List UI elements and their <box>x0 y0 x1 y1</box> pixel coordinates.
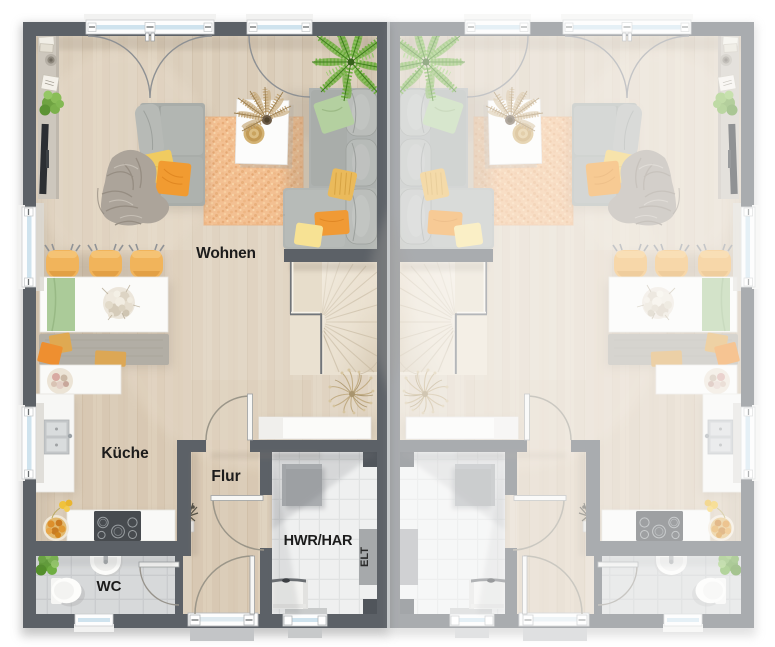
svg-text:HWR/HAR: HWR/HAR <box>284 533 353 549</box>
svg-text:ELT: ELT <box>359 547 371 567</box>
svg-text:Küche: Küche <box>101 445 149 462</box>
svg-text:Flur: Flur <box>211 468 240 485</box>
svg-text:Wohnen: Wohnen <box>196 245 256 262</box>
svg-text:WC: WC <box>97 578 122 595</box>
